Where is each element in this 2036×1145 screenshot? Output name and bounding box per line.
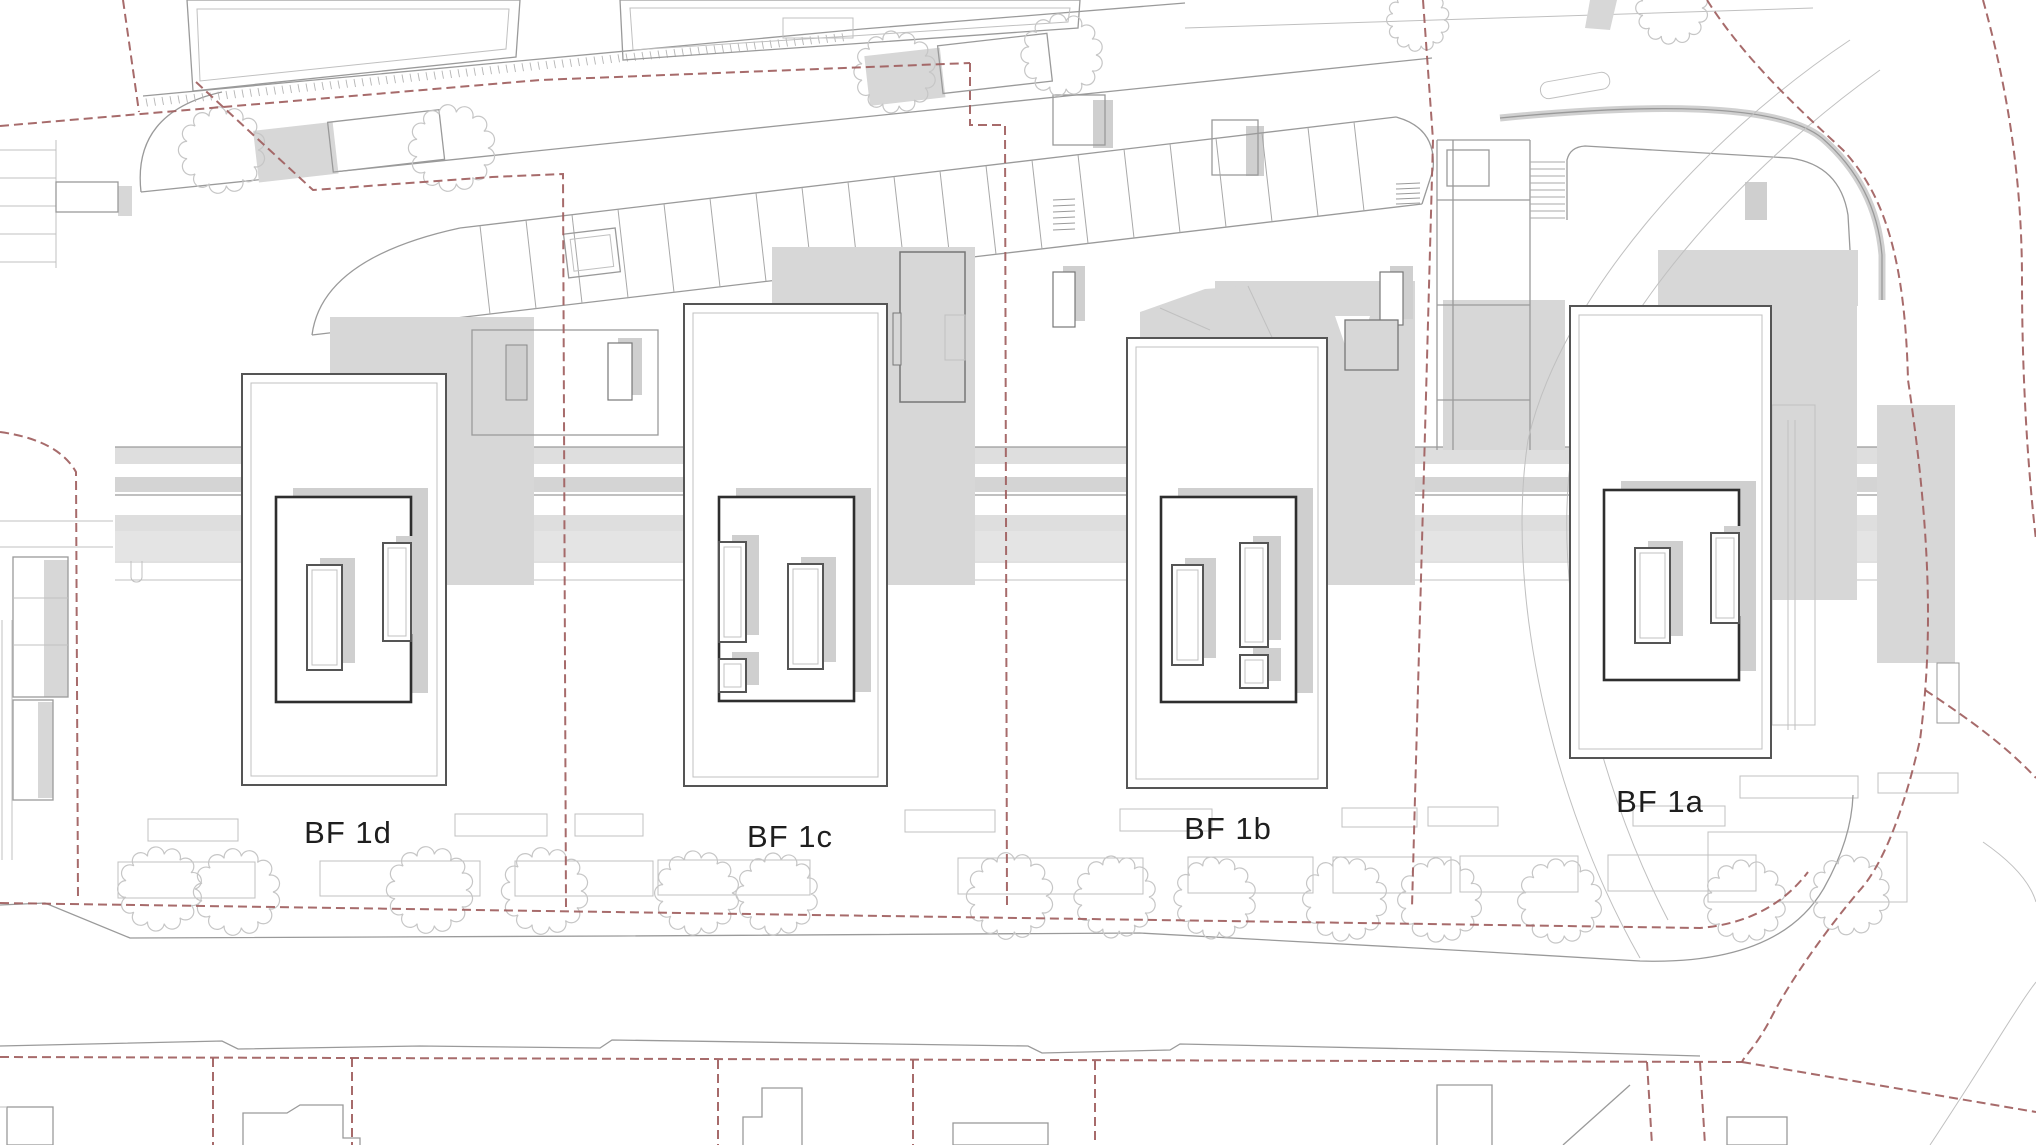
tree-icon — [1303, 857, 1387, 941]
tree-icon — [1174, 857, 1255, 939]
site-plan-canvas: BF 1d BF 1c BF 1b BF 1a — [0, 0, 2036, 1145]
street-and-beds — [0, 795, 1907, 1145]
top-building-a — [187, 0, 520, 91]
ramp-box — [564, 228, 621, 278]
building-label-bf1a: BF 1a — [1616, 784, 1704, 819]
building-label-bf1d: BF 1d — [304, 815, 392, 850]
boundary-bottom — [0, 1057, 1742, 1062]
hatch-ticks — [146, 33, 844, 106]
tree-icon — [966, 853, 1052, 940]
tree-icon — [1704, 860, 1785, 942]
boundary-bottom-diagonal — [1742, 1062, 2036, 1112]
tree-icon — [386, 847, 472, 934]
building-label-bf1b: BF 1b — [1184, 811, 1272, 846]
building-bf1b — [1127, 338, 1327, 788]
stairs-hatch-1 — [1053, 199, 1075, 230]
roof-wedge — [1585, 0, 1617, 30]
building-label-bf1c: BF 1c — [747, 819, 833, 854]
paving-island — [1539, 71, 1611, 100]
tree-icon — [736, 853, 817, 935]
building-bf1a — [1570, 306, 1771, 758]
stairs-hatch-2 — [1396, 183, 1420, 204]
tree-icon — [1518, 859, 1602, 943]
stairs-hatch-3 — [1530, 162, 1565, 218]
left-edge-buildings — [0, 140, 142, 860]
building-bf1d — [242, 374, 446, 785]
boundary-top — [0, 63, 970, 126]
building-bf1c — [684, 304, 887, 786]
boundary-right-edge — [1983, 0, 2036, 540]
site-plan: BF 1d BF 1c BF 1b BF 1a — [0, 0, 2036, 1145]
building-labels: BF 1d BF 1c BF 1b BF 1a — [304, 784, 1704, 854]
tree-icon — [1636, 0, 1708, 44]
tree-icon — [118, 847, 202, 931]
tree-icon — [655, 851, 739, 935]
tree-icon — [1387, 0, 1449, 51]
boundary-top-diagonal — [123, 0, 139, 112]
roof-box-1 — [1053, 95, 1113, 148]
tree-icon — [1398, 858, 1482, 942]
